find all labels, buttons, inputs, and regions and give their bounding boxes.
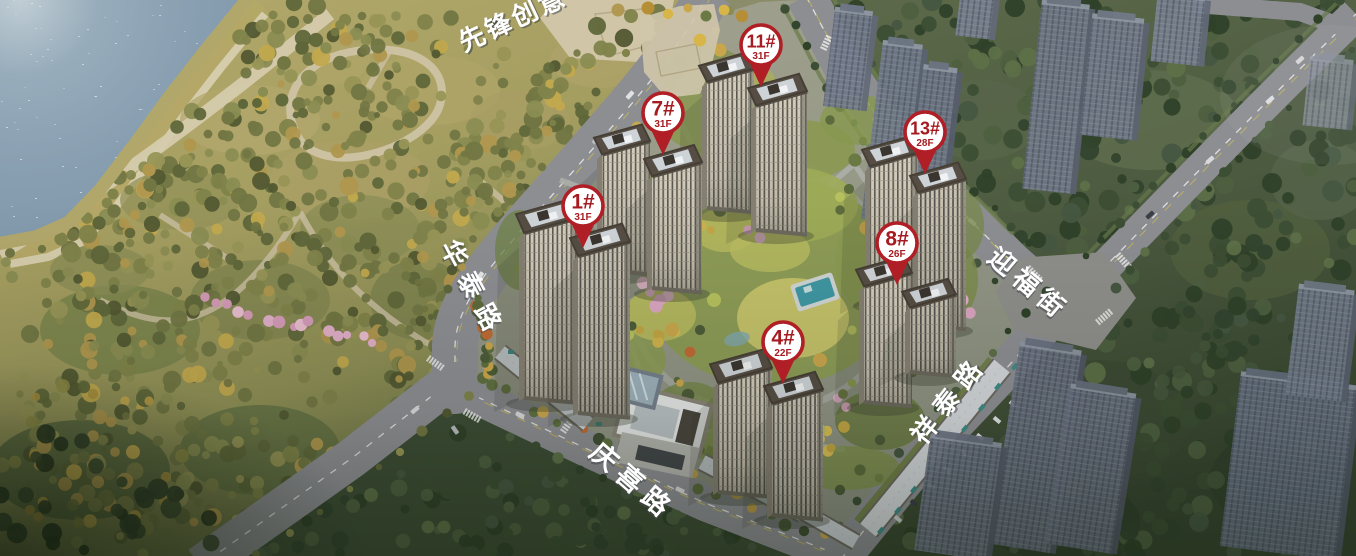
svg-text:28F: 28F [916,138,933,149]
svg-text:26F: 26F [888,249,905,260]
svg-text:8#: 8# [885,228,909,251]
svg-text:31F: 31F [654,119,671,130]
svg-text:7#: 7# [651,98,675,121]
svg-text:22F: 22F [774,348,791,359]
svg-text:1#: 1# [571,191,595,214]
svg-text:11#: 11# [746,32,775,52]
svg-text:13#: 13# [910,119,940,139]
svg-text:31F: 31F [752,51,769,62]
svg-text:31F: 31F [574,212,591,223]
svg-text:4#: 4# [771,327,795,350]
